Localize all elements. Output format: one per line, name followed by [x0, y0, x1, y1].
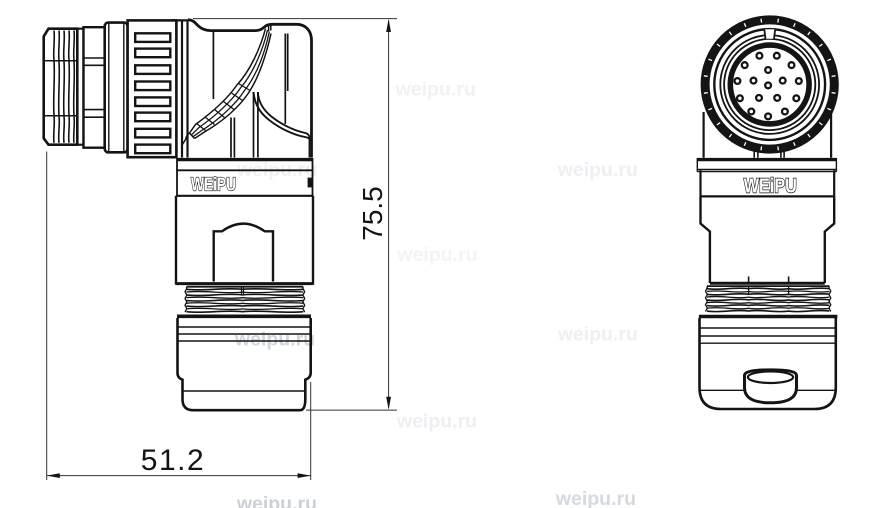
- svg-text:75.5: 75.5: [357, 186, 388, 241]
- svg-text:weipu.ru: weipu.ru: [557, 324, 638, 346]
- svg-text:weipu.ru: weipu.ru: [236, 159, 317, 181]
- svg-text:WEiPU: WEiPU: [191, 174, 236, 194]
- svg-text:weipu.ru: weipu.ru: [396, 244, 477, 266]
- svg-text:weipu.ru: weipu.ru: [557, 159, 638, 181]
- svg-text:weipu.ru: weipu.ru: [234, 329, 315, 351]
- svg-text:weipu.ru: weipu.ru: [396, 411, 477, 433]
- svg-text:51.2: 51.2: [141, 444, 205, 477]
- svg-text:weipu.ru: weipu.ru: [236, 493, 317, 508]
- svg-text:weipu.ru: weipu.ru: [555, 488, 636, 508]
- svg-text:weipu.ru: weipu.ru: [395, 79, 476, 101]
- svg-text:WEiPU: WEiPU: [744, 175, 797, 197]
